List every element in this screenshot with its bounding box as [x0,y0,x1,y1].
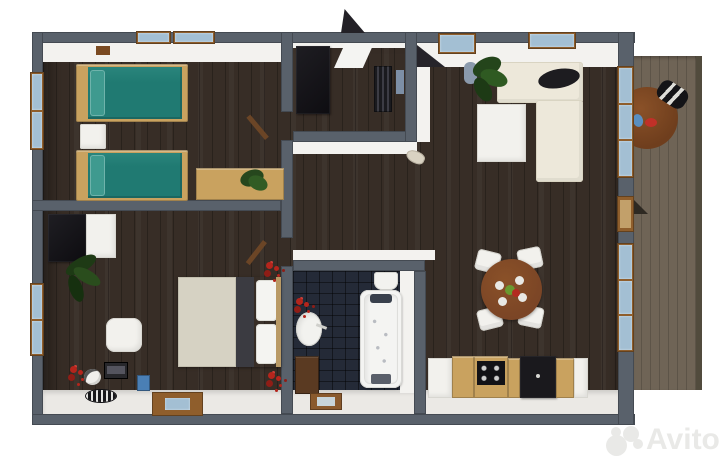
window-pane [619,245,632,279]
window-pane [32,74,42,110]
living-top-window-2 [528,32,576,49]
bedroom2-cabinet [86,214,116,258]
hall-radiator [374,66,392,112]
bathroom-vanity [295,356,319,394]
bedroom-top-window-1 [136,31,171,44]
dining-right-window [617,243,634,352]
window-pane [619,281,632,315]
watermark-logo-circle [633,439,643,449]
toilet [374,272,398,290]
window-pane [619,68,632,103]
bed-pillow-1 [256,280,277,321]
deck-item-red [645,118,657,127]
wall-vertical-lower [281,266,293,414]
round-rug [86,390,116,402]
red-flowers [266,262,273,269]
hall-mirror [396,70,404,94]
plate [495,281,504,290]
kitchen-oven-cabinet [520,356,556,398]
deck-door [617,196,634,232]
bath-mat-center [317,397,335,406]
wall-bath-east [414,271,426,414]
living-plant [462,56,510,108]
bed-runner [236,277,254,367]
hall-south-wall-face [293,142,417,154]
watermark: Avito [598,418,718,464]
kitchen-cooktop-unit [474,356,508,398]
cooktop [477,361,505,385]
twin-bed-1 [76,64,188,122]
kitchen-cabinet-wood-3 [556,358,574,398]
bath-mat [310,393,342,410]
front-door-open [341,9,365,33]
wall-bedrooms-divider [32,200,281,211]
bedroom2-bottom-window [152,392,203,416]
window-pane [175,33,213,42]
deck [632,56,702,390]
red-flowers [70,366,77,373]
living-right-window [617,66,634,178]
deck-door-panel [620,200,631,228]
bedroom2-plant [58,254,106,310]
wall-hall-south [293,131,417,142]
red-flowers [268,372,275,379]
window-pane [32,321,42,355]
window-pane [619,141,632,176]
armchair [106,318,142,352]
bathtub [360,290,402,388]
window-pane [619,105,632,140]
wall-hall-east [405,32,417,142]
twin-bed-2 [76,150,188,201]
coffee-table [477,104,526,162]
dining-table [481,259,542,320]
pillow [90,70,105,116]
food-red [512,289,520,297]
nightstand [80,124,106,149]
window-pane [530,34,574,47]
bath-north-wall-face [293,250,435,260]
pedestal-sink [296,312,322,346]
floorplan-canvas: Avito [0,0,719,466]
plate [498,297,507,306]
living-top-window-1 [438,33,476,54]
bedroom-left-window [30,72,44,150]
blue-box [137,375,150,391]
wall-decor-item [96,46,110,55]
bed-pillow-2 [256,324,277,364]
sofa-side-section [536,100,583,182]
oven-knob [536,374,540,378]
window-pane [32,285,42,319]
bedroom-desk [196,168,284,200]
plate [515,276,524,285]
pillow [90,155,105,196]
bathroom-flowers [296,298,303,305]
double-bed [178,277,281,367]
bathtub-headrest [370,294,392,303]
window-pane [440,35,474,52]
bathtub-basin [364,294,398,384]
bedroom-top-window-2 [173,31,215,44]
deck-edge [696,56,702,390]
deck-door-shadow [632,198,648,214]
wall-bath-north [293,260,425,271]
kitchen-counter-white-left [428,358,452,398]
kitchen-counter-white-right [574,358,588,398]
bathtub-step [371,374,391,384]
white-round-decor [84,369,101,385]
hall-wardrobe [296,46,330,114]
window-pane [32,112,42,148]
kitchen-cabinet-wood-2 [508,358,520,398]
desk-plant-leaf [246,172,270,193]
north-wall-face-bedroom [43,43,281,62]
window-pane [619,316,632,350]
headboard [276,277,281,367]
watermark-brand-text: Avito [646,418,719,462]
window-pane [165,398,190,410]
window-pane [138,33,169,42]
kitchen-cabinet-wood-1 [452,356,474,398]
bath-east-wall-face [400,271,414,393]
bedroom2-left-window [30,283,44,356]
wall-vertical-upper [281,32,293,112]
tv-box [104,362,128,379]
duvet-beige [178,277,236,367]
wall-bottom [32,414,635,425]
tv-screen [107,366,125,374]
